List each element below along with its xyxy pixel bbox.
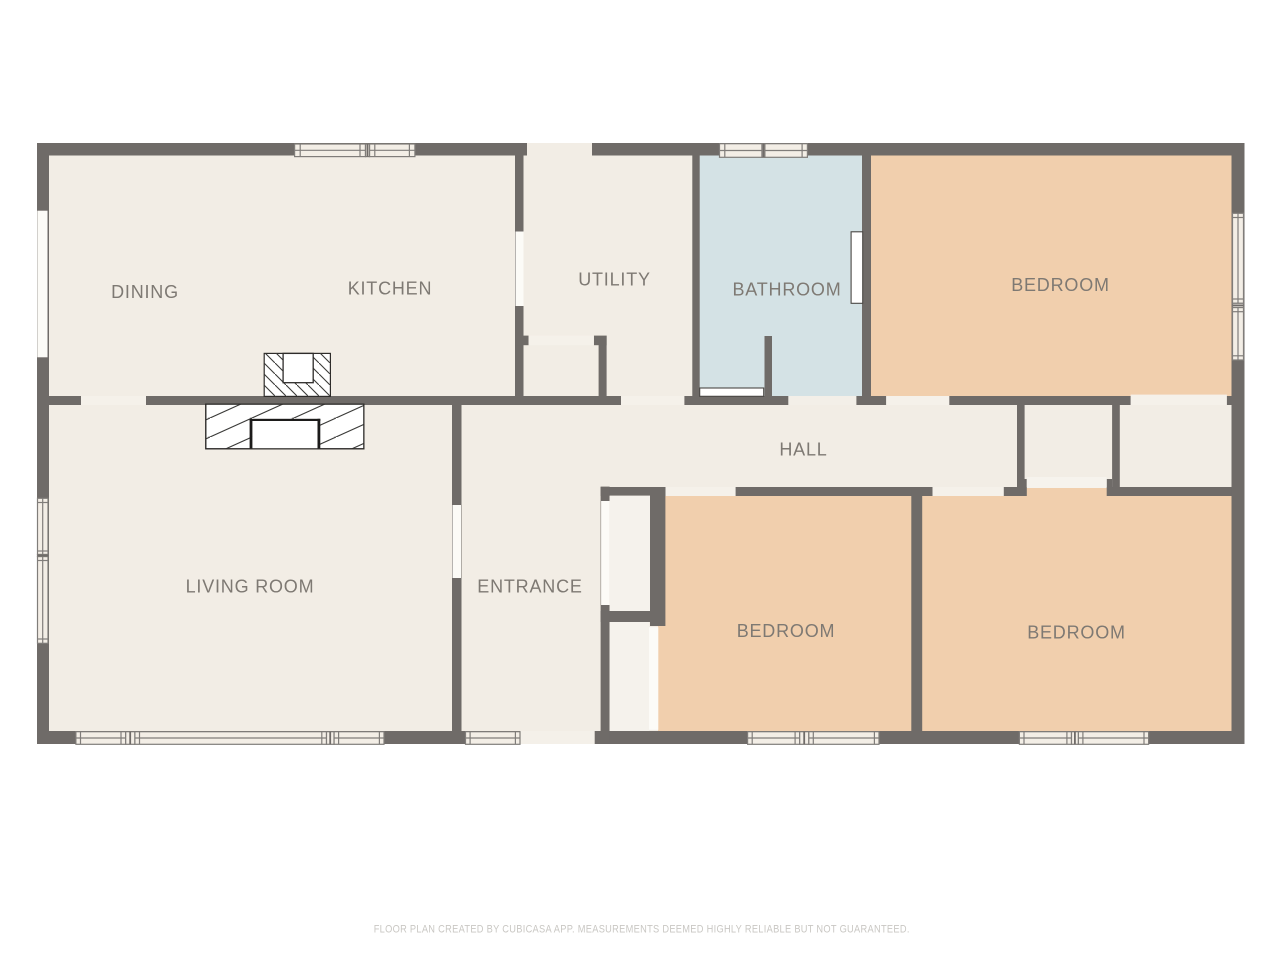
svg-text:HALL: HALL xyxy=(779,440,827,460)
svg-text:KITCHEN: KITCHEN xyxy=(348,279,433,299)
svg-text:UTILITY: UTILITY xyxy=(578,270,651,290)
svg-text:ENTRANCE: ENTRANCE xyxy=(477,577,582,597)
svg-text:LIVING ROOM: LIVING ROOM xyxy=(186,577,315,597)
svg-text:FLOOR PLAN CREATED BY CUBICASA: FLOOR PLAN CREATED BY CUBICASA APP. MEAS… xyxy=(374,924,910,936)
svg-text:BEDROOM: BEDROOM xyxy=(1011,275,1110,295)
svg-text:BEDROOM: BEDROOM xyxy=(737,621,836,641)
svg-text:BATHROOM: BATHROOM xyxy=(732,280,841,300)
svg-text:DINING: DINING xyxy=(111,282,179,302)
svg-text:BEDROOM: BEDROOM xyxy=(1027,623,1126,643)
